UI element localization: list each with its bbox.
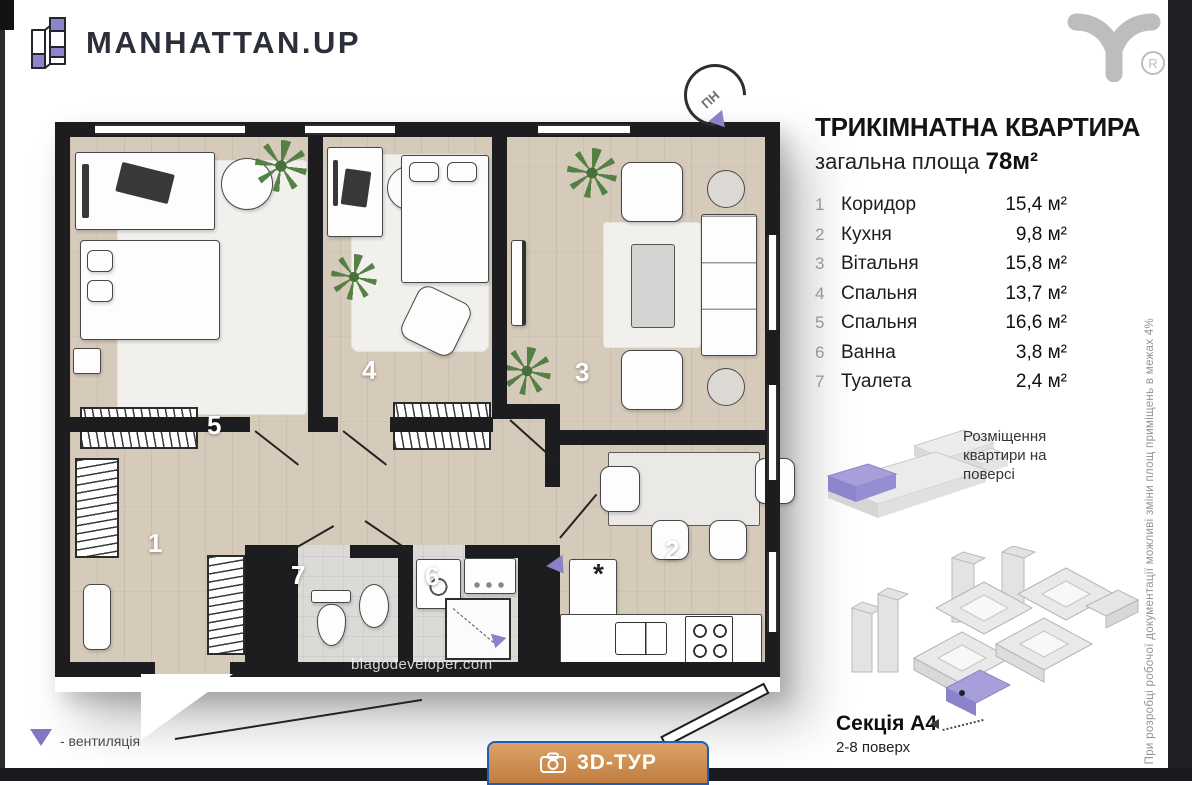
registered-mark-icon: R [1140, 50, 1166, 76]
stove [685, 616, 733, 664]
toilet-tank [311, 590, 351, 603]
wall-segment [55, 122, 70, 677]
row-name: Ванна [841, 342, 1016, 364]
window [305, 124, 395, 135]
plan-room-label: 7 [291, 560, 305, 591]
plant-icon [331, 254, 377, 300]
window [538, 124, 630, 135]
table-row: 5 Спальня 16,6 м² [815, 312, 1067, 342]
disclaimer-text: При розробці робочої документації можлив… [1144, 318, 1156, 764]
armchair [621, 162, 683, 222]
row-num: 1 [815, 195, 841, 215]
kitchen-symbol: * [593, 558, 604, 590]
wall-segment [492, 137, 507, 419]
row-area: 3,8 м² [1016, 342, 1067, 364]
table-row: 4 Спальня 13,7 м² [815, 283, 1067, 313]
brand-header: MANHATTAN.UP [26, 14, 361, 72]
window [767, 552, 778, 632]
floor-placement-caption: Розміщення квартири на поверсі [963, 427, 1083, 485]
area-value: 78м² [986, 148, 1038, 175]
wall-segment [245, 545, 283, 677]
wardrobe [75, 458, 119, 558]
brand-name: MANHATTAN.UP [86, 25, 361, 61]
watermark-text: blagodeveloper.com [351, 656, 492, 673]
dining-chair [600, 466, 640, 512]
plan-room-label: 2 [665, 535, 679, 566]
plant-icon [503, 347, 551, 395]
row-name: Спальня [841, 312, 1005, 334]
wall-segment [350, 545, 398, 558]
plan-room-label: 3 [575, 357, 589, 388]
pillow [409, 162, 439, 182]
row-area: 2,4 м² [1016, 371, 1067, 393]
table-row: 2 Кухня 9,8 м² [815, 224, 1067, 254]
row-num: 2 [815, 225, 841, 245]
side-table [707, 368, 745, 406]
row-area: 15,8 м² [1005, 253, 1067, 275]
row-area: 15,4 м² [1005, 194, 1067, 216]
tv-console [511, 240, 526, 326]
section-arrow-icon [930, 719, 939, 729]
row-area: 16,6 м² [1005, 312, 1067, 334]
brand-building-icon [26, 14, 72, 72]
plan-room-label: 5 [207, 410, 221, 441]
door-swing-line [175, 699, 422, 740]
bench [83, 584, 111, 650]
balcony-edge [660, 683, 769, 748]
apartment-subtitle: загальна площа 78м² [815, 148, 1038, 176]
plan-room-label: 6 [425, 561, 439, 592]
monitor-icon [82, 164, 89, 218]
pillow [87, 250, 113, 272]
row-num: 3 [815, 254, 841, 274]
window [767, 385, 778, 480]
plan-room-label: 1 [148, 528, 162, 559]
keyboard-icon [341, 168, 372, 207]
wall-segment [465, 545, 518, 558]
left-edge-strip [0, 0, 5, 781]
nightstand [73, 348, 101, 374]
ventilation-legend-label: - вентиляція [60, 733, 140, 749]
building-complex-diagram [834, 546, 1146, 722]
wall-segment [308, 417, 338, 432]
wall-segment [560, 430, 765, 445]
row-name: Спальня [841, 283, 1005, 305]
sink [359, 584, 389, 628]
wardrobe [207, 555, 245, 655]
row-num: 5 [815, 313, 841, 333]
3d-tour-label: 3D-ТУР [577, 751, 657, 775]
apartment-title: ТРИКІМНАТНА КВАРТИРА [815, 112, 1140, 143]
wall-segment [390, 417, 493, 432]
table-row: 1 Коридор 15,4 м² [815, 194, 1067, 224]
wall-segment [55, 662, 155, 677]
table-row: 3 Вітальня 15,8 м² [815, 253, 1067, 283]
row-name: Кухня [841, 224, 1016, 246]
coffee-table [631, 244, 675, 328]
camera-icon [539, 752, 567, 774]
table-row: 6 Ванна 3,8 м² [815, 342, 1067, 372]
row-name: Туалета [841, 371, 1016, 393]
pillow [447, 162, 477, 182]
plant-icon [255, 140, 307, 192]
svg-text:R: R [1148, 56, 1157, 71]
wall-segment [70, 417, 250, 432]
wall-segment [308, 137, 323, 432]
row-num: 6 [815, 343, 841, 363]
row-area: 13,7 м² [1005, 283, 1067, 305]
window [767, 235, 778, 330]
window [95, 124, 245, 135]
section-label: Секція А4 [836, 712, 937, 736]
room-area-table: 1 Коридор 15,4 м² 2 Кухня 9,8 м² 3 Вітал… [815, 194, 1067, 401]
dining-chair [709, 520, 747, 560]
bathroom-vanity [464, 558, 516, 594]
floor-plan: * 1 2 3 4 5 6 7 blagodeveloper.com [55, 122, 780, 692]
sofa [701, 214, 757, 356]
area-label: загальна площа [815, 149, 979, 174]
plan-room-label: 4 [362, 355, 376, 386]
plant-icon [567, 148, 617, 198]
row-name: Вітальня [841, 253, 1005, 275]
top-left-corner-block [0, 0, 14, 30]
wall-segment [230, 662, 780, 677]
monitor-icon [333, 160, 338, 206]
armchair [621, 350, 683, 410]
ventilation-legend-icon [30, 729, 52, 746]
row-area: 9,8 м² [1016, 224, 1067, 246]
side-table [707, 170, 745, 208]
row-num: 7 [815, 372, 841, 392]
table-row: 7 Туалета 2,4 м² [815, 371, 1067, 401]
3d-tour-button[interactable]: 3D-ТУР [487, 741, 709, 785]
kitchen-sink [615, 622, 667, 655]
pillow [87, 280, 113, 302]
section-floors-label: 2-8 поверх [836, 739, 910, 756]
row-name: Коридор [841, 194, 1005, 216]
row-num: 4 [815, 284, 841, 304]
right-edge-strip [1168, 0, 1192, 781]
